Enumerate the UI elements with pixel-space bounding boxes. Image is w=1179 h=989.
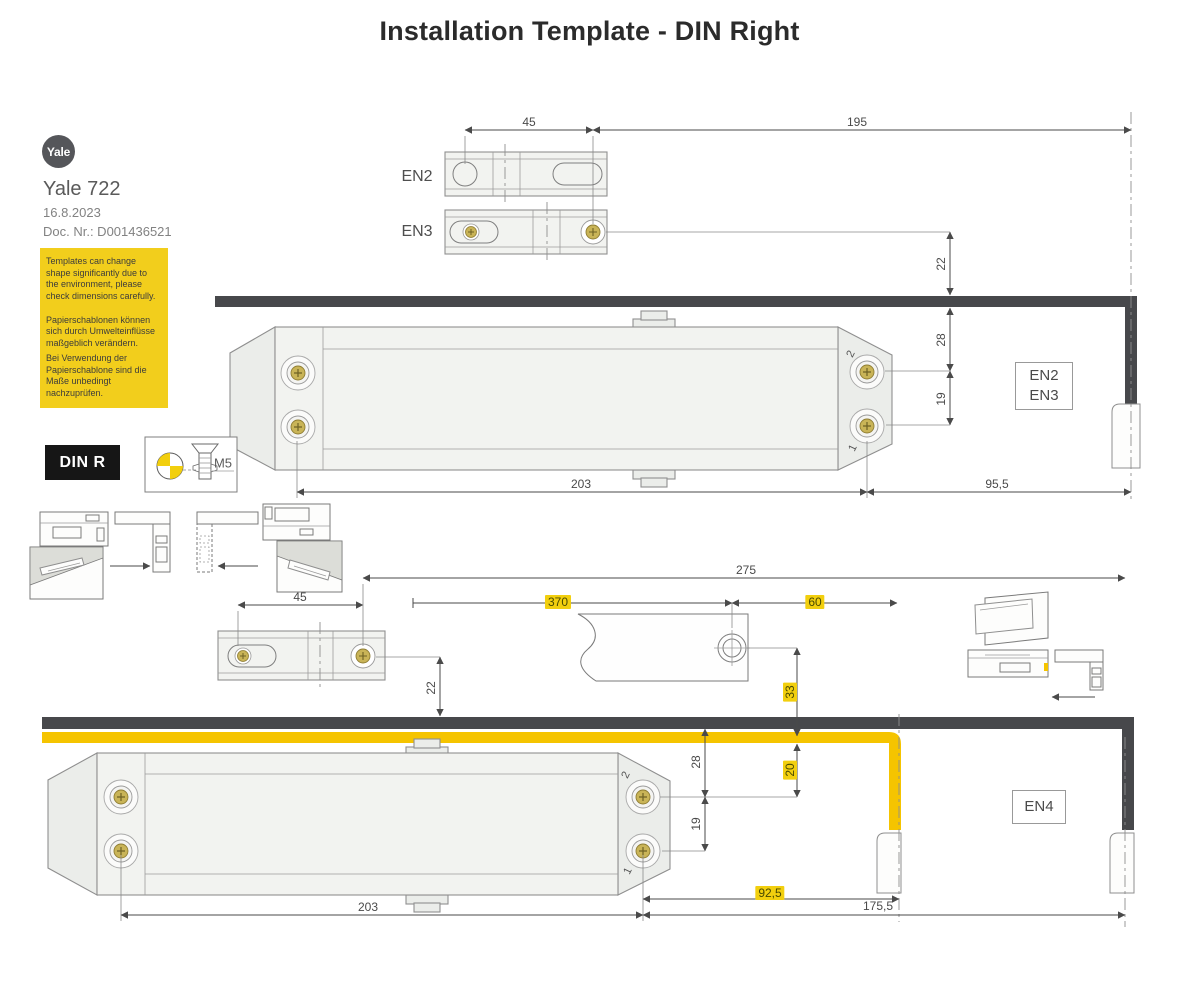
dim-19-top: 19 [934,392,948,405]
frame-angle-icon [110,512,170,572]
frame-angle-icon-2 [1052,650,1103,697]
frame-angle-dashed-icon [197,512,258,572]
hinge-bottom [1110,833,1134,893]
screw-bottom-left-2 [104,780,138,814]
dim-19-bottom: 19 [689,817,703,830]
dim-203-bottom: 203 [358,900,378,914]
slide-arm-segment [578,603,750,681]
screw-top-left-2 [281,356,315,390]
closer-perspective-icon-2 [277,541,342,592]
en3-bracket-label: EN3 [401,223,432,241]
dim-175-5: 175,5 [863,899,893,913]
dim-45-bottom: 45 [293,590,306,604]
en2-bracket [445,144,607,204]
page-title: Installation Template - DIN Right [0,16,1179,47]
dim-95-5: 95,5 [985,477,1008,491]
dim-203-top: 203 [571,477,591,491]
warning-text-de-1: Papierschablonen können sich durch Umwel… [46,315,162,350]
warning-text-en: Templates can change shape significantly… [46,256,162,303]
screw-bottom-right-2 [626,780,660,814]
mounting-pictograms-right [968,592,1103,697]
dim-275: 275 [736,563,756,577]
document-number: Doc. Nr.: D001436521 [43,224,172,239]
datum-target-icon [157,453,183,479]
installation-template-page: Installation Template - DIN Right Yale Y… [0,0,1179,989]
en2-bracket-label: EN2 [401,168,432,186]
dim-92-5-highlighted: 92,5 [755,886,784,900]
screw-spec-label: M5 [214,456,232,471]
bottom-bracket [218,622,385,690]
dim-33-highlighted: 33 [783,682,797,701]
closer-front-icon [40,512,108,546]
screw-top-right-1 [850,409,884,443]
dim-28-bottom: 28 [689,755,703,768]
rating-box-en2-en3: EN2 EN3 [1015,362,1073,410]
dim-195: 195 [847,115,867,129]
closer-perspective-icon [30,547,103,599]
dim-370-highlighted: 370 [545,595,571,609]
mounting-pictograms-left [30,504,342,599]
door-closer-body-top [230,311,892,487]
screw-top-left-1 [281,410,315,444]
closer-front-icon-3 [968,650,1048,677]
en3-bracket [445,202,607,262]
channel-end-hinge [877,833,901,893]
door-closer-body-bottom [48,739,670,912]
warning-text-de-2: Bei Verwendung der Papierschablone sind … [46,353,162,400]
screw-top-right-2 [850,355,884,389]
rating-en4: EN4 [1024,797,1053,817]
document-date: 16.8.2023 [43,205,101,220]
din-right-badge: DIN R [45,445,120,480]
rating-en3: EN3 [1029,386,1058,406]
technical-drawing [0,0,1179,989]
closer-front-icon-2 [263,504,330,540]
yale-logo: Yale [42,135,75,168]
rating-box-en4: EN4 [1012,790,1066,824]
dim-60-highlighted: 60 [805,595,824,609]
hinge-top [1112,404,1140,468]
warning-note: Templates can change shape significantly… [40,248,168,408]
dim-45-top: 45 [522,115,535,129]
dim-22-top: 22 [934,257,948,270]
product-name: Yale 722 [43,178,120,201]
dim-22-bottom: 22 [424,681,438,694]
yale-logo-text: Yale [47,145,70,159]
dim-20-highlighted: 20 [783,760,797,779]
closer-perspective-icon-3 [975,592,1048,645]
dim-28-top: 28 [934,333,948,346]
rating-en2: EN2 [1029,366,1058,386]
